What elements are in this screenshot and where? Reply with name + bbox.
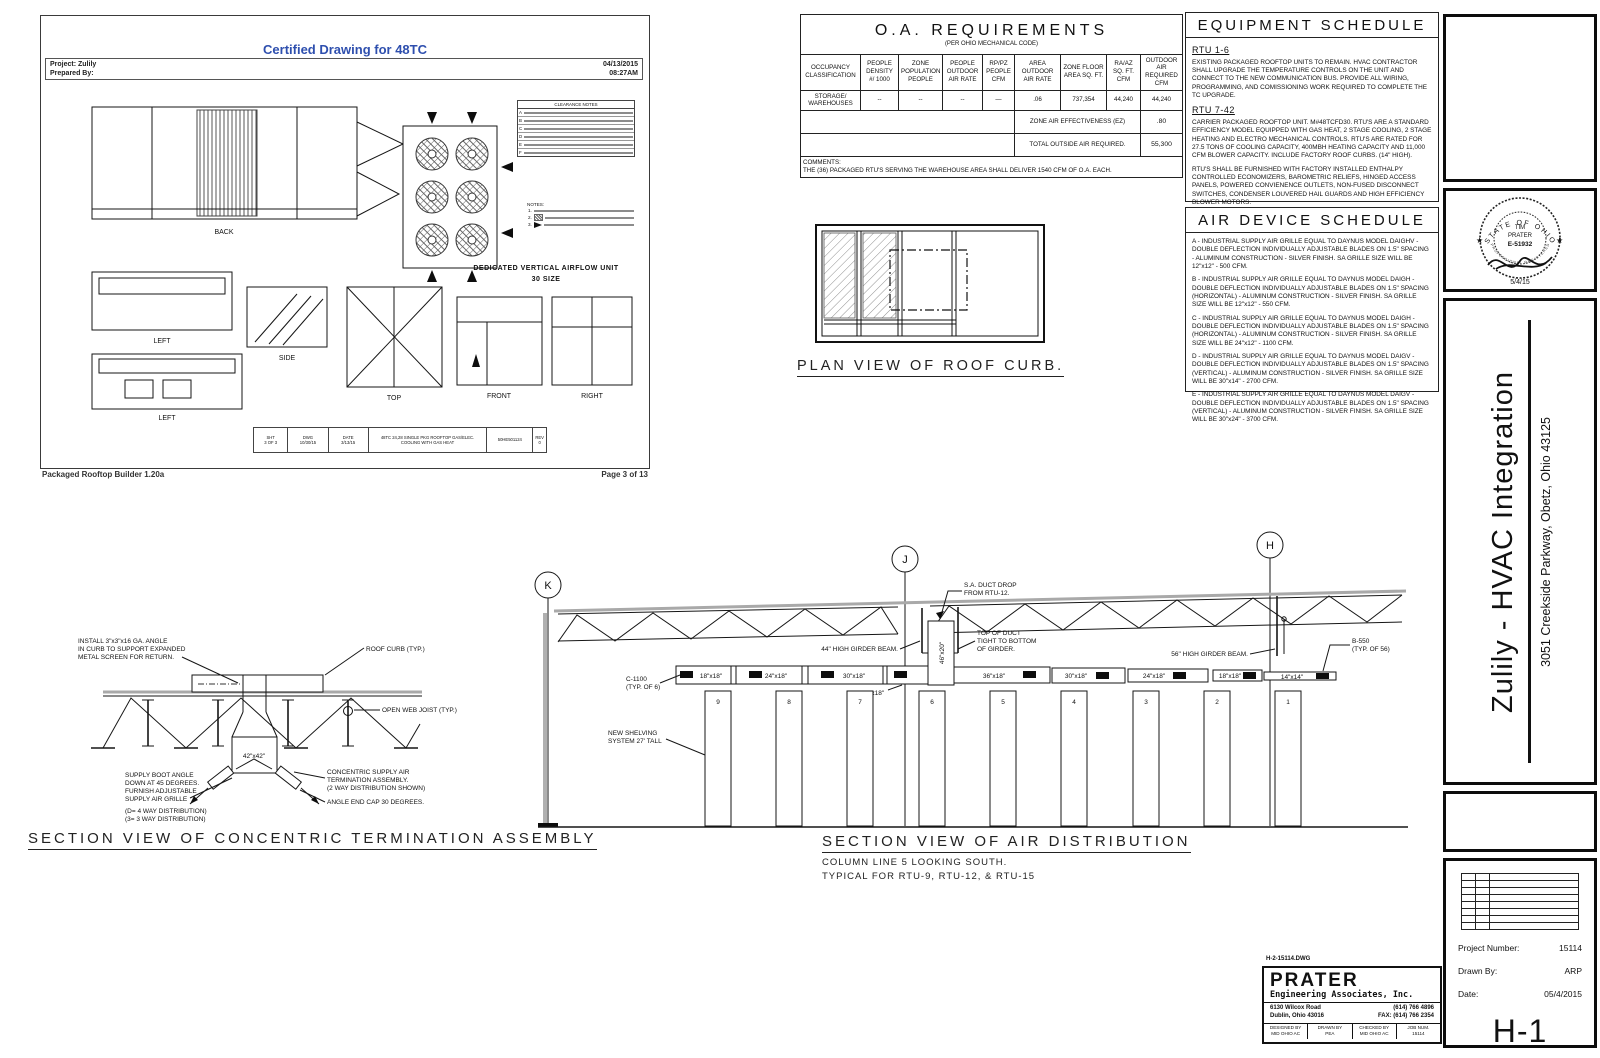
shelving-racks: 9 8 7 6 5 4 3 2 1 (705, 691, 1301, 826)
air-section-subtitle: COLUMN LINE 5 LOOKING SOUTH. TYPICAL FOR… (822, 856, 1035, 885)
svg-text:14"x14": 14"x14" (1281, 674, 1304, 681)
svg-text:24"x18": 24"x18" (765, 673, 788, 680)
right-label: RIGHT (581, 393, 604, 400)
inset-title: Certified Drawing for 48TC (41, 42, 649, 57)
oa-total-label: TOTAL OUTSIDE AIR REQUIRED. (1015, 134, 1141, 157)
drawing-sheet: Certified Drawing for 48TC Project: Zuli… (0, 0, 1600, 1058)
rtu-7-42-text-2: RTU'S SHALL BE FURNISHED WITH FACTORY IN… (1192, 166, 1432, 208)
concentric-labels: INSTALL 3"x3"x16 GA. ANGLE IN CURB TO SU… (78, 638, 457, 823)
note-item: 1. (527, 207, 635, 214)
concentric-section-title: SECTION VIEW OF CONCENTRIC TERMINATION A… (28, 830, 597, 850)
svg-text:NEW SHELVING: NEW SHELVING (608, 730, 657, 737)
svg-text:C-1100: C-1100 (626, 676, 647, 683)
svg-text:SUPPLY AIR GRILLE: SUPPLY AIR GRILLE (125, 796, 188, 803)
titleblock-blank-box-top (1443, 14, 1597, 182)
note-item: 3. (527, 221, 635, 228)
svg-text:FROM RTU-12.: FROM RTU-12. (964, 590, 1010, 597)
svg-text:(TYP. OF 56): (TYP. OF 56) (1352, 646, 1390, 653)
oa-total-row: TOTAL OUTSIDE AIR REQUIRED. 55,300 (801, 134, 1183, 157)
inset-footer-left: Packaged Rooftop Builder 1.20a (42, 470, 164, 479)
svg-text:CONCENTRIC SUPPLY AIR: CONCENTRIC SUPPLY AIR (327, 769, 410, 776)
inset-datetime-block: 04/13/2015 08:27AM (603, 60, 638, 78)
svg-text:FURNISH ADJUSTABLE: FURNISH ADJUSTABLE (125, 788, 197, 795)
note-item: 2. (527, 214, 635, 221)
strip-rev: REV0 (533, 428, 546, 452)
inset-header: Project: Zulily Prepared By: 04/13/2015 … (45, 58, 643, 80)
bubble-j: J (902, 554, 908, 566)
strip-dwg: DWG10/30/15 (288, 428, 328, 452)
seal-date: 5/4/15 (1510, 279, 1530, 286)
oa-ez-value: .80 (1141, 111, 1183, 134)
svg-text:IN CURB TO SUPPORT EXPANDED: IN CURB TO SUPPORT EXPANDED (78, 646, 186, 653)
revision-grid (1461, 873, 1579, 930)
oa-comments-label: COMMENTS: (803, 159, 841, 166)
unit-caption: DEDICATED VERTICAL AIRFLOW UNIT30 SIZE (461, 264, 631, 285)
sheet-number: H-1 (1446, 1013, 1594, 1050)
svg-text:(TYP. OF 6): (TYP. OF 6) (626, 684, 660, 691)
oa-ez-row: ZONE AIR EFFECTIVENESS (EZ) .80 (801, 111, 1183, 134)
prater-name: Engineering Associates, Inc. (1264, 990, 1440, 1002)
project-number-label: Project Number: (1458, 943, 1519, 953)
date-row: Date: 05/4/2015 (1446, 989, 1594, 999)
left1-label: LEFT (153, 338, 171, 345)
oa-comments: THE (36) PACKAGED RTU'S SERVING THE WARE… (803, 167, 1112, 174)
svg-text:30"x18": 30"x18" (1065, 673, 1088, 680)
air-distribution-drawing: K J H (530, 523, 1420, 843)
inset-project-block: Project: Zulily Prepared By: (50, 60, 96, 78)
clearance-title: CLEARANCE NOTES (518, 101, 634, 109)
svg-text:OPEN WEB JOIST (TYP.): OPEN WEB JOIST (TYP.) (382, 707, 457, 714)
svg-text:44" HIGH GIRDER BEAM.: 44" HIGH GIRDER BEAM. (821, 646, 898, 653)
air-device-e: E - INDUSTRIAL SUPPLY AIR GRILLE EQUAL T… (1192, 391, 1432, 424)
seal-name-2: PRATER (1508, 233, 1533, 239)
rtu-1-6-text: EXISTING PACKAGED ROOFTOP UNITS TO REMAI… (1192, 59, 1432, 101)
clearance-row: A (518, 109, 634, 117)
bubble-h: H (1266, 540, 1274, 552)
inset-title-strip: SHT3 OF 3 DWG10/30/15 DATE3/13/15 48TC 2… (253, 427, 547, 453)
curb-hatch-1 (824, 233, 855, 318)
roof-curb-plan-drawing (795, 218, 1055, 350)
roof-curb (192, 675, 323, 692)
back-label: BACK (214, 229, 233, 236)
drawn-by-row: Drawn By: ARP (1446, 966, 1594, 976)
svg-text:B-550: B-550 (1352, 638, 1370, 645)
inset-prepared: Prepared By: (50, 69, 96, 78)
air-device-b: B - INDUSTRIAL SUPPLY AIR GRILLE EQUAL T… (1192, 276, 1432, 309)
air-device-c: C - INDUSTRIAL SUPPLY AIR GRILLE EQUAL T… (1192, 315, 1432, 348)
strip-desc: 48TC 24,28 SINGLE PKG ROOFTOP GAS/ELEC.C… (369, 428, 487, 452)
project-address: 3051 Creekside Parkway, Obetz, Ohio 4312… (1539, 417, 1553, 667)
duct-size-label: 42"x42" (243, 753, 266, 760)
project-number-value: 15114 (1559, 943, 1582, 953)
air-device-d: D - INDUSTRIAL SUPPLY AIR GRILLE EQUAL T… (1192, 353, 1432, 386)
rtu-7-42-text-1: CARRIER PACKAGED ROOFTOP UNIT. M#48TCFD3… (1192, 119, 1432, 161)
oa-total-value: 55,300 (1141, 134, 1183, 157)
girder-56 (1277, 596, 1286, 656)
svg-text:24"x18": 24"x18" (1143, 673, 1166, 680)
air-section-sub1: COLUMN LINE 5 LOOKING SOUTH. (822, 856, 1035, 870)
equipment-schedule-title: EQUIPMENT SCHEDULE (1186, 13, 1438, 38)
svg-text:7: 7 (858, 699, 862, 706)
designed-by-cell: DESIGNED BYMID OHIO AC (1264, 1024, 1308, 1040)
rtu-1-6-heading: RTU 1-6 (1192, 45, 1432, 57)
svg-text:TIGHT TO BOTTOM: TIGHT TO BOTTOM (977, 638, 1036, 645)
strip-sht: SHT3 OF 3 (254, 428, 288, 452)
door-swing-lower (357, 172, 399, 216)
prater-address-row: 6130 Wilcox Road Dublin, Ohio 43016 (614… (1264, 1002, 1440, 1023)
prater-logo: PRATER (1264, 968, 1440, 990)
sheet-info-box: Project Number: 15114 Drawn By: ARP Date… (1443, 858, 1597, 1048)
air-device-a: A - INDUSTRIAL SUPPLY AIR GRILLE EQUAL T… (1192, 238, 1432, 271)
dwg-filename: H-2-15114.DWG (1266, 956, 1310, 962)
engineer-seal-box: STATE OF OHIO PROFESSIONAL REGISTERED EN… (1443, 188, 1597, 292)
svg-text:TOP OF DUCT: TOP OF DUCT (977, 630, 1021, 637)
date-value: 05/4/2015 (1544, 989, 1582, 999)
curb-hatch-2 (863, 233, 896, 318)
svg-text:18"x18": 18"x18" (1219, 673, 1242, 680)
front-label: FRONT (487, 393, 512, 400)
clearance-row: B (518, 117, 634, 125)
coil-hatch (197, 110, 257, 216)
oa-title: O.A. REQUIREMENTS (803, 17, 1180, 41)
drawn-by-cell: DRAWN BYPEA (1308, 1024, 1352, 1040)
strip-date: DATE3/13/15 (329, 428, 369, 452)
svg-text:3: 3 (1144, 699, 1148, 706)
project-title: Zulily - HVAC Integration (1487, 371, 1520, 713)
prater-addr1: 6130 Wilcox Road (1270, 1005, 1324, 1013)
svg-text:1: 1 (1286, 699, 1290, 706)
inset-footer-right: Page 3 of 13 (601, 470, 648, 479)
svg-text:6: 6 (930, 699, 934, 706)
svg-text:ANGLE END CAP 30 DEGREES.: ANGLE END CAP 30 DEGREES. (327, 799, 424, 806)
project-title-box: Zulily - HVAC Integration 3051 Creekside… (1443, 298, 1597, 785)
roof-curb-plan-title: PLAN VIEW OF ROOF CURB. (797, 358, 1064, 377)
front-view-outline (457, 297, 542, 385)
svg-text:SUPPLY BOOT ANGLE: SUPPLY BOOT ANGLE (125, 772, 194, 779)
svg-text:ROOF CURB (TYP.): ROOF CURB (TYP.) (366, 646, 425, 653)
certified-drawing-inset: Certified Drawing for 48TC Project: Zuli… (40, 15, 650, 469)
titleblock-blank-box-bottom (1443, 791, 1597, 852)
clearance-row: C (518, 125, 634, 133)
svg-text:9: 9 (716, 699, 720, 706)
clearance-row: F (518, 149, 634, 156)
svg-text:(3= 3 WAY DISTRIBUTION): (3= 3 WAY DISTRIBUTION) (125, 816, 206, 823)
svg-text:36"x18": 36"x18" (983, 673, 1006, 680)
left2-label: LEFT (158, 415, 176, 422)
title-divider (1528, 320, 1531, 763)
air-device-schedule-title: AIR DEVICE SCHEDULE (1186, 208, 1438, 233)
oa-subtitle: (PER OHIO MECHANICAL CODE) (803, 41, 1180, 52)
top-label: TOP (387, 395, 402, 402)
svg-text:2: 2 (1215, 699, 1219, 706)
side-label: SIDE (279, 355, 296, 362)
svg-text:56" HIGH GIRDER BEAM.: 56" HIGH GIRDER BEAM. (1171, 651, 1248, 658)
seal-star-left: ★ (1476, 236, 1483, 245)
air-section-title: SECTION VIEW OF AIR DISTRIBUTION (822, 833, 1191, 853)
drawn-by-label: Drawn By: (1458, 966, 1497, 976)
svg-text:5: 5 (1001, 699, 1005, 706)
air-device-schedule: AIR DEVICE SCHEDULE A - INDUSTRIAL SUPPL… (1185, 207, 1439, 392)
svg-text:DOWN AT 45 DEGREES.: DOWN AT 45 DEGREES. (125, 780, 199, 787)
svg-text:METAL SCREEN FOR RETURN.: METAL SCREEN FOR RETURN. (78, 654, 174, 661)
inset-project: Project: Zulily (50, 60, 96, 69)
column-bubbles: K J H (535, 532, 1283, 598)
engineer-seal: STATE OF OHIO PROFESSIONAL REGISTERED EN… (1446, 191, 1594, 289)
bubble-k: K (544, 580, 552, 592)
svg-text:TERMINATION ASSEMBLY.: TERMINATION ASSEMBLY. (327, 777, 408, 784)
oa-requirements-table: O.A. REQUIREMENTS (PER OHIO MECHANICAL C… (800, 14, 1183, 178)
clearance-row: E (518, 141, 634, 149)
prater-addr2: Dublin, Ohio 43016 (1270, 1013, 1324, 1021)
seal-number: E-51932 (1508, 241, 1533, 248)
svg-text:S.A. DUCT DROP: S.A. DUCT DROP (964, 582, 1017, 589)
date-label: Date: (1458, 989, 1478, 999)
prater-credit-cells: DESIGNED BYMID OHIO AC DRAWN BYPEA CHECK… (1264, 1023, 1440, 1040)
rtu-7-42-heading: RTU 7-42 (1192, 105, 1432, 117)
svg-text:OF GIRDER.: OF GIRDER. (977, 646, 1015, 653)
drop-size-label: 46"x20" (939, 641, 946, 664)
svg-text:(D= 4 WAY DISTRIBUTION): (D= 4 WAY DISTRIBUTION) (125, 808, 207, 815)
oa-comments-row: COMMENTS: THE (36) PACKAGED RTU'S SERVIN… (801, 157, 1183, 178)
svg-text:8: 8 (787, 699, 791, 706)
project-number-row: Project Number: 15114 (1446, 943, 1594, 953)
prater-fax: FAX: (614) 766 2354 (1378, 1013, 1434, 1021)
inset-notes: NOTES: 1. 2. 3. (527, 202, 635, 228)
svg-text:4: 4 (1072, 699, 1076, 706)
prater-phone: (614) 766 4896 (1378, 1005, 1434, 1013)
strip-num: 50HE501124 (487, 428, 533, 452)
drawn-by-value: ARP (1565, 966, 1582, 976)
air-device-schedule-body: A - INDUSTRIAL SUPPLY AIR GRILLE EQUAL T… (1186, 233, 1438, 435)
svg-text:18"x18": 18"x18" (700, 673, 723, 680)
prater-titleblock: PRATER Engineering Associates, Inc. 6130… (1262, 966, 1442, 1044)
inset-time: 08:27AM (603, 69, 638, 78)
svg-text:INSTALL 3"x3"x16 GA. ANGLE: INSTALL 3"x3"x16 GA. ANGLE (78, 638, 168, 645)
clearance-row: D (518, 133, 634, 141)
svg-text:SYSTEM 27' TALL: SYSTEM 27' TALL (608, 738, 662, 745)
oa-data-row: STORAGE/ WAREHOUSES---- --—.06 737,35444… (801, 90, 1183, 111)
equipment-schedule: EQUIPMENT SCHEDULE RTU 1-6 EXISTING PACK… (1185, 12, 1439, 202)
svg-text:30"x18": 30"x18" (843, 673, 866, 680)
oa-title-cell: O.A. REQUIREMENTS (PER OHIO MECHANICAL C… (801, 15, 1183, 55)
oa-header-row: OCCUPANCY CLASSIFICATIONPEOPLE DENSITY #… (801, 54, 1183, 90)
oa-ez-label: ZONE AIR EFFECTIVENESS (EZ) (1015, 111, 1141, 134)
svg-text:(2 WAY DISTRIBUTION SHOWN): (2 WAY DISTRIBUTION SHOWN) (327, 785, 425, 792)
concentric-termination-drawing: 42"x42" INSTALL 3"x3"x16 GA. ANGLE IN CU… (30, 612, 520, 826)
door-swing-upper (357, 122, 403, 166)
air-section-sub2: TYPICAL FOR RTU-9, RTU-12, & RTU-15 (822, 870, 1035, 884)
seal-star-right: ★ (1556, 236, 1563, 245)
job-num-cell: JOB NUM.15114 (1397, 1024, 1440, 1040)
clearance-notes-table: CLEARANCE NOTES A B C D E F (517, 100, 635, 157)
seal-name-1: TIM (1515, 225, 1525, 231)
inset-footer: Packaged Rooftop Builder 1.20a Page 3 of… (42, 470, 648, 479)
checked-by-cell: CHECKED BYMID OHIO AC (1353, 1024, 1397, 1040)
inset-date: 04/13/2015 (603, 60, 638, 69)
